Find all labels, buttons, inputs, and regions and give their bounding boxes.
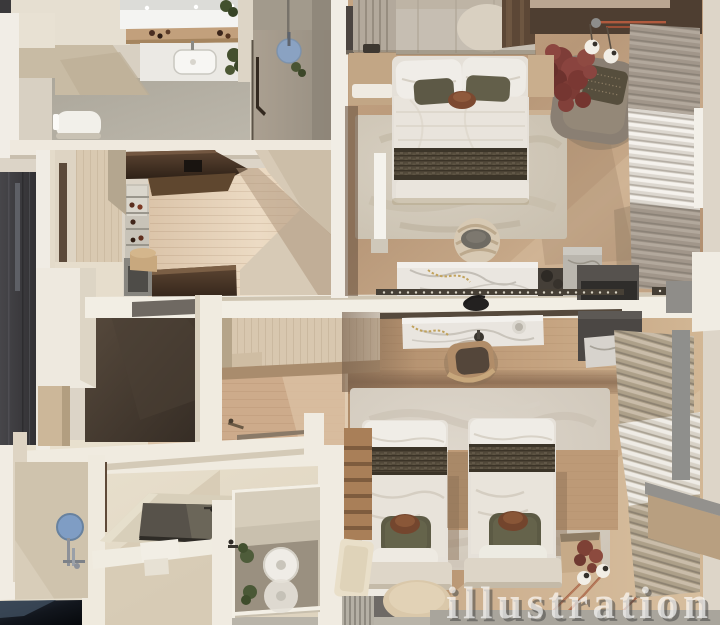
svg-text:illustration: illustration (446, 578, 713, 625)
